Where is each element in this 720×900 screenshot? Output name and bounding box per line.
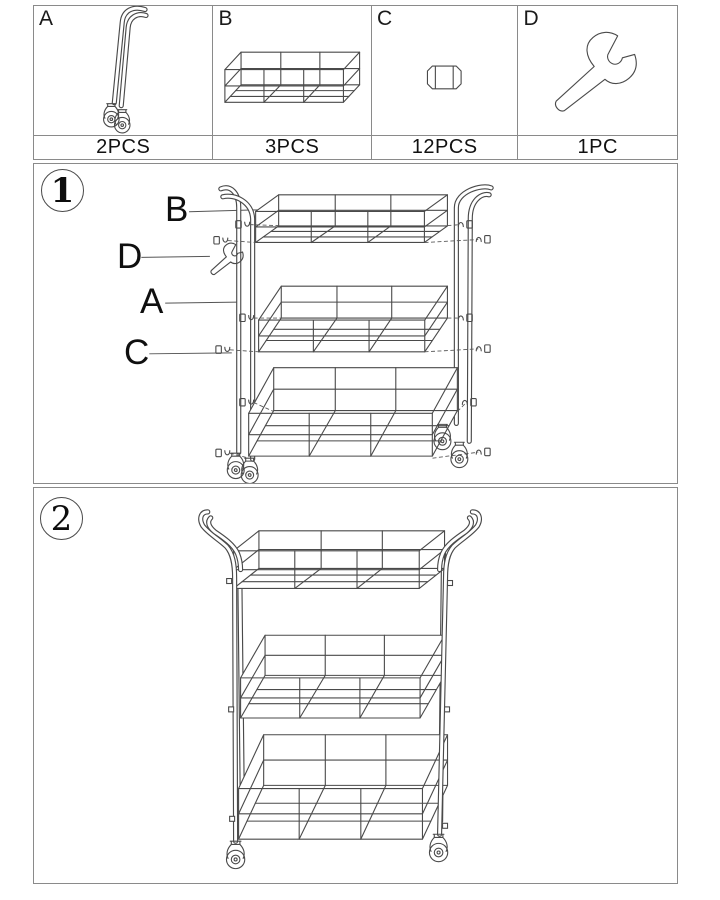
part-letter: C	[377, 7, 392, 31]
step-1-panel: 1 B D A C	[33, 163, 678, 484]
wrench-drawing	[518, 6, 677, 134]
step-2-panel: 2	[33, 487, 678, 884]
exploded-cart-drawing	[34, 164, 677, 483]
wrench-icon	[538, 24, 645, 126]
part-letter: B	[218, 7, 232, 31]
callout-letter-c: C	[124, 335, 149, 371]
part-cell-a: A 2PCS	[34, 6, 213, 159]
top-basket	[234, 531, 445, 589]
part-cell-d: D 1PC	[518, 6, 677, 159]
top-basket	[256, 195, 448, 243]
right-side-frame	[456, 187, 491, 441]
part-count: 3PCS	[213, 135, 371, 159]
step-number-badge: 1	[41, 169, 84, 212]
middle-basket	[241, 635, 445, 718]
side-frame-drawing	[34, 6, 212, 134]
part-count: 2PCS	[34, 135, 212, 159]
nut-art	[427, 66, 461, 89]
part-count: 12PCS	[372, 135, 518, 159]
assembly-instruction-sheet: A 2PCS B 3PCS C 12PCS D 1	[0, 0, 720, 900]
basket-shelf-drawing	[213, 6, 371, 134]
step-number: 1	[51, 171, 75, 211]
bottom-basket	[239, 735, 448, 839]
callout-letter-b: B	[165, 192, 188, 228]
part-cell-c: C 12PCS	[372, 6, 519, 159]
part-cell-b: B 3PCS	[213, 6, 372, 159]
part-letter: A	[39, 7, 53, 31]
parts-table: A 2PCS B 3PCS C 12PCS D 1	[33, 5, 678, 160]
part-count: 1PC	[518, 135, 677, 159]
side-frame-art	[104, 8, 146, 133]
part-letter: D	[523, 7, 538, 31]
step-number: 2	[51, 499, 73, 539]
basket-art	[225, 52, 360, 102]
nut-drawing	[372, 6, 518, 134]
bottom-basket	[249, 368, 458, 456]
middle-basket	[259, 286, 448, 352]
caster-icon	[429, 834, 447, 861]
callout-letter-a: A	[140, 284, 163, 320]
caster-icon	[451, 442, 468, 467]
left-side-frame	[201, 512, 241, 841]
step-number-badge: 2	[40, 497, 83, 540]
caster-icon	[226, 841, 244, 868]
callout-letter-d: D	[117, 239, 142, 275]
assembled-cart-drawing	[34, 488, 677, 883]
